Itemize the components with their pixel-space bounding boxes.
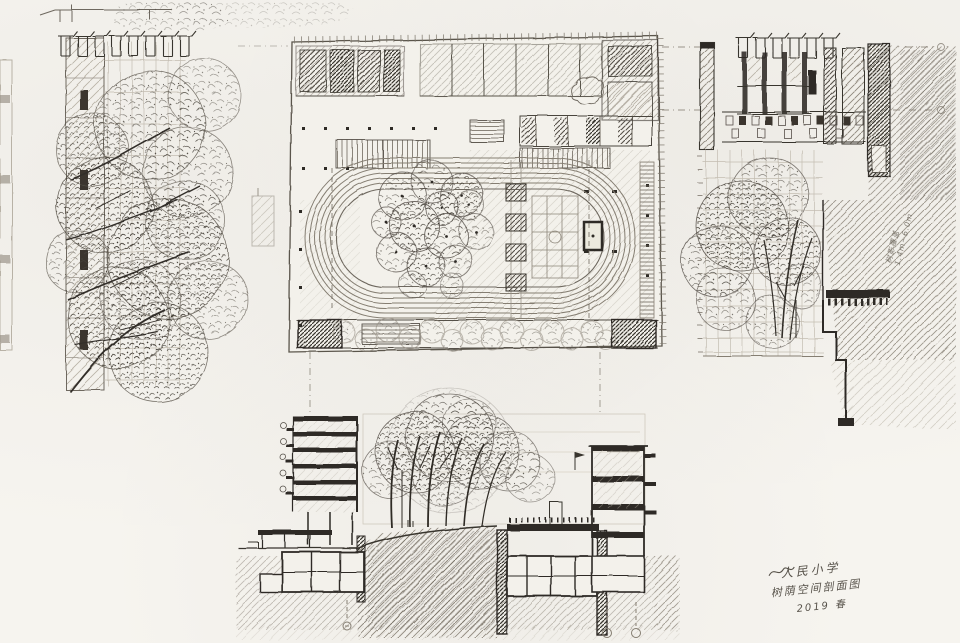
east-tree-canopy (682, 156, 822, 348)
east-section-elevation (682, 33, 956, 430)
campus-cross-section (236, 388, 680, 640)
flag (575, 452, 585, 458)
mound-tree-grove (362, 388, 554, 528)
sketch-canvas: 树影覆盖 1.4m~6.0m 人民小学 树荫空间剖面图 2019 春 (0, 0, 960, 643)
earth-mound (349, 520, 497, 638)
east-bleacher-steps (640, 162, 654, 318)
cropped-building-edge (0, 60, 12, 350)
pencil-drawing (0, 0, 960, 643)
annex-block (252, 188, 274, 246)
handwritten-signature-block: 人民小学 树荫空间剖面图 2019 春 (766, 556, 864, 617)
section-walls (737, 52, 816, 114)
